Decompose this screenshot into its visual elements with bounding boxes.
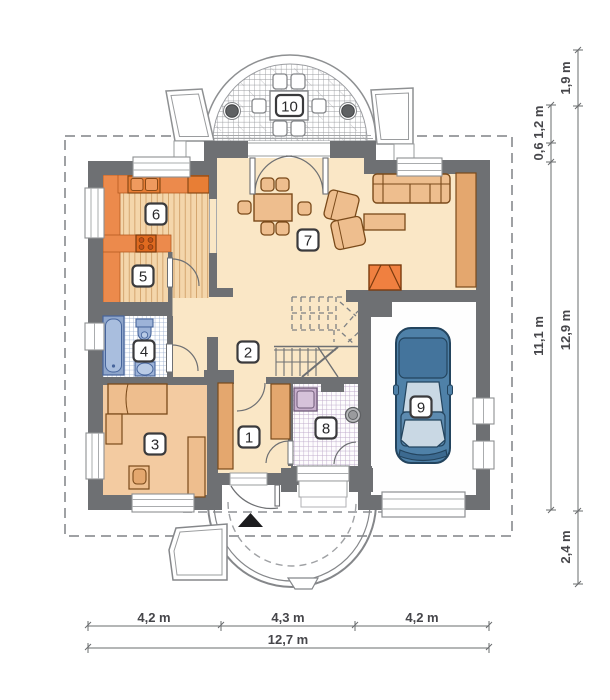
svg-text:10: 10 (281, 99, 298, 116)
svg-text:6: 6 (152, 207, 160, 224)
svg-text:4,3 m: 4,3 m (271, 610, 304, 625)
svg-text:0,6 1,2 m: 0,6 1,2 m (531, 106, 546, 161)
svg-text:2,4 m: 2,4 m (558, 530, 573, 563)
svg-text:4: 4 (140, 344, 148, 361)
svg-text:1,9 m: 1,9 m (558, 61, 573, 94)
svg-text:4,2 m: 4,2 m (405, 610, 438, 625)
svg-text:1: 1 (245, 430, 253, 447)
svg-text:3: 3 (151, 437, 159, 454)
svg-text:8: 8 (322, 421, 330, 438)
svg-text:4,2 m: 4,2 m (137, 610, 170, 625)
svg-text:11,1 m: 11,1 m (531, 316, 546, 356)
svg-text:5: 5 (139, 269, 147, 286)
svg-text:9: 9 (417, 400, 425, 417)
svg-text:2: 2 (244, 345, 252, 362)
svg-text:7: 7 (304, 233, 312, 250)
svg-text:12,9 m: 12,9 m (558, 310, 573, 350)
svg-text:12,7 m: 12,7 m (268, 632, 308, 647)
